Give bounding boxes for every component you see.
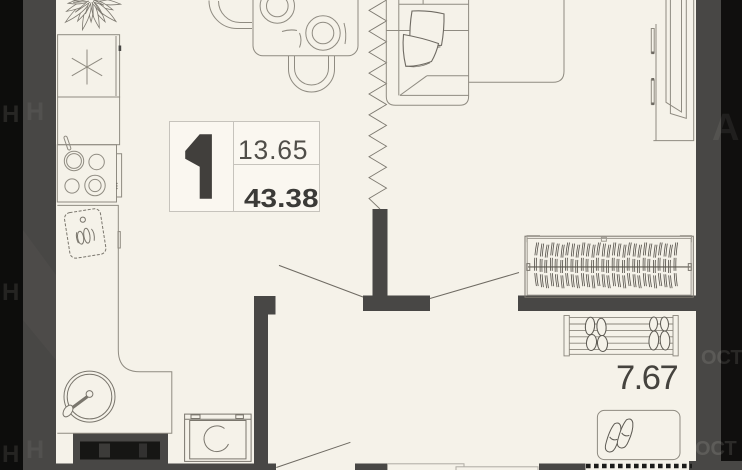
svg-text:А: А — [712, 107, 739, 149]
svg-text:Н: Н — [2, 101, 19, 128]
svg-text:Н: Н — [26, 436, 44, 464]
svg-text:ОСТ: ОСТ — [695, 438, 737, 460]
svg-text:ОСТ: ОСТ — [701, 347, 742, 369]
svg-text:Н: Н — [2, 441, 19, 468]
svg-text:Н: Н — [2, 279, 19, 306]
svg-text:Н: Н — [26, 98, 44, 126]
